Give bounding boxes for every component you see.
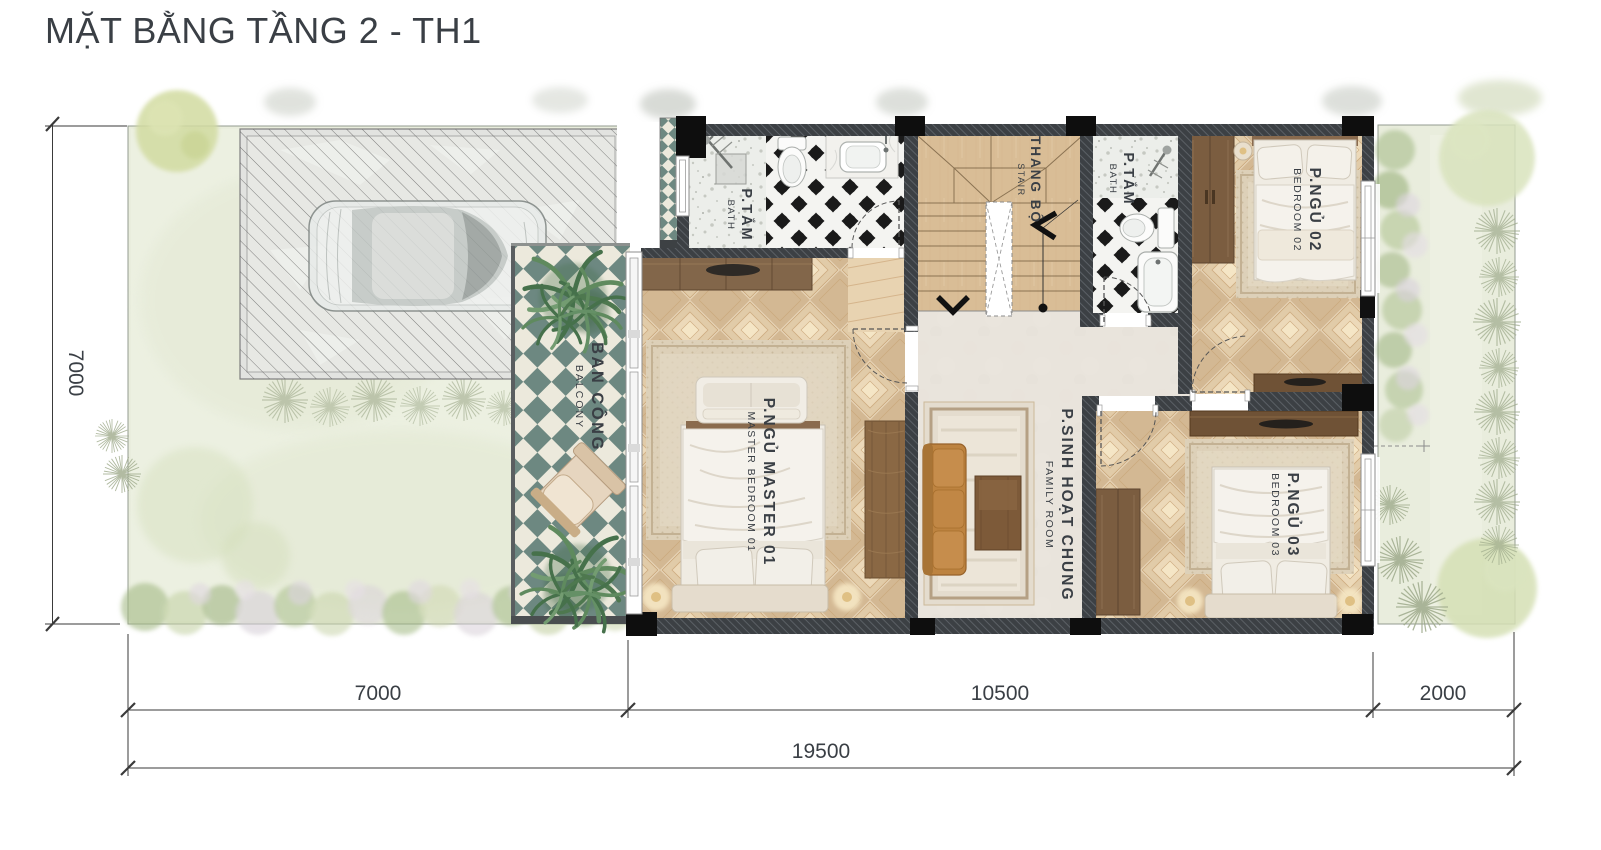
svg-text:BEDROOM 02: BEDROOM 02: [1291, 168, 1303, 252]
svg-text:BATH: BATH: [1107, 164, 1118, 195]
svg-text:BATH: BATH: [725, 200, 736, 231]
svg-text:FAMILY ROOM: FAMILY ROOM: [1043, 461, 1055, 549]
svg-text:P.NGỦ 03: P.NGỦ 03: [1284, 473, 1302, 558]
svg-text:7000: 7000: [64, 350, 87, 397]
svg-text:P.NGỦ MASTER 01: P.NGỦ MASTER 01: [760, 398, 778, 566]
svg-text:MASTER BEDROOM 01: MASTER BEDROOM 01: [745, 411, 757, 552]
svg-text:P.TẮM: P.TẮM: [738, 188, 756, 241]
svg-text:P.NGỦ 02: P.NGỦ 02: [1306, 168, 1324, 253]
svg-text:2000: 2000: [1420, 682, 1467, 705]
svg-text:P.SINH HOẠT CHUNG: P.SINH HOẠT CHUNG: [1058, 408, 1075, 601]
svg-text:BEDROOM 03: BEDROOM 03: [1269, 473, 1281, 557]
svg-text:BALCONY: BALCONY: [573, 365, 585, 429]
svg-text:THANG BỘ: THANG BỘ: [1028, 136, 1043, 224]
svg-text:STAIR: STAIR: [1016, 163, 1026, 196]
svg-text:19500: 19500: [792, 740, 850, 763]
svg-text:10500: 10500: [971, 682, 1029, 705]
svg-text:MẶT BẰNG TẦNG 2 - TH1: MẶT BẰNG TẦNG 2 - TH1: [45, 10, 482, 51]
svg-text:P.TẮM: P.TẮM: [1120, 152, 1138, 205]
svg-text:BAN CÔNG: BAN CÔNG: [588, 342, 607, 452]
svg-text:7000: 7000: [355, 682, 402, 705]
